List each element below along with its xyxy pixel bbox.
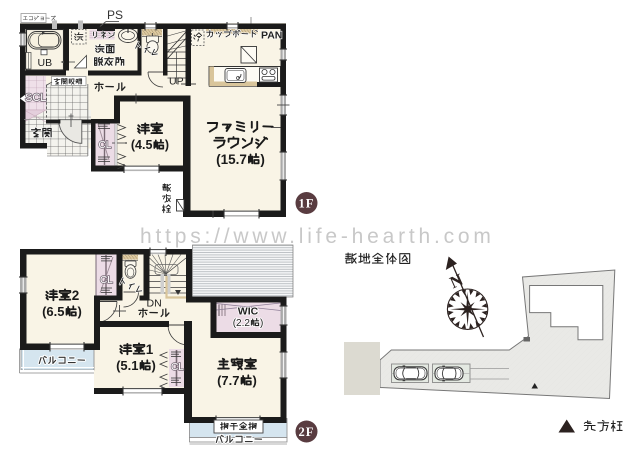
svg-text:CL: CL [171,362,184,373]
svg-text:): ) [260,318,263,329]
svg-text:): ) [253,373,257,388]
svg-text:WIC: WIC [238,306,259,318]
svg-text:): ) [165,138,169,152]
svg-text:PS: PS [107,8,123,22]
svg-text:1F: 1F [299,197,315,211]
svg-text:https://www.life-hearth.com: https://www.life-hearth.com [140,225,495,248]
svg-text:): ) [78,304,82,319]
svg-text:UP: UP [169,76,184,88]
svg-text:(7.7: (7.7 [217,373,239,388]
svg-text:): ) [260,152,265,167]
svg-text:2F: 2F [299,425,315,439]
svg-text:): ) [152,358,156,373]
svg-text:SCL: SCL [25,92,46,104]
svg-text:(4.5: (4.5 [131,138,153,152]
svg-text:2: 2 [72,288,80,303]
svg-text:(15.7: (15.7 [216,152,247,167]
svg-text:(5.1: (5.1 [116,358,138,373]
svg-text:1: 1 [146,342,154,357]
svg-text:CL: CL [99,140,112,151]
svg-text:CL: CL [100,275,113,286]
svg-text:DN: DN [147,298,162,310]
svg-text:PAN: PAN [261,30,282,42]
svg-text:(6.5: (6.5 [42,304,64,319]
svg-text:(2.2: (2.2 [233,318,251,329]
svg-text:UB: UB [38,57,53,69]
